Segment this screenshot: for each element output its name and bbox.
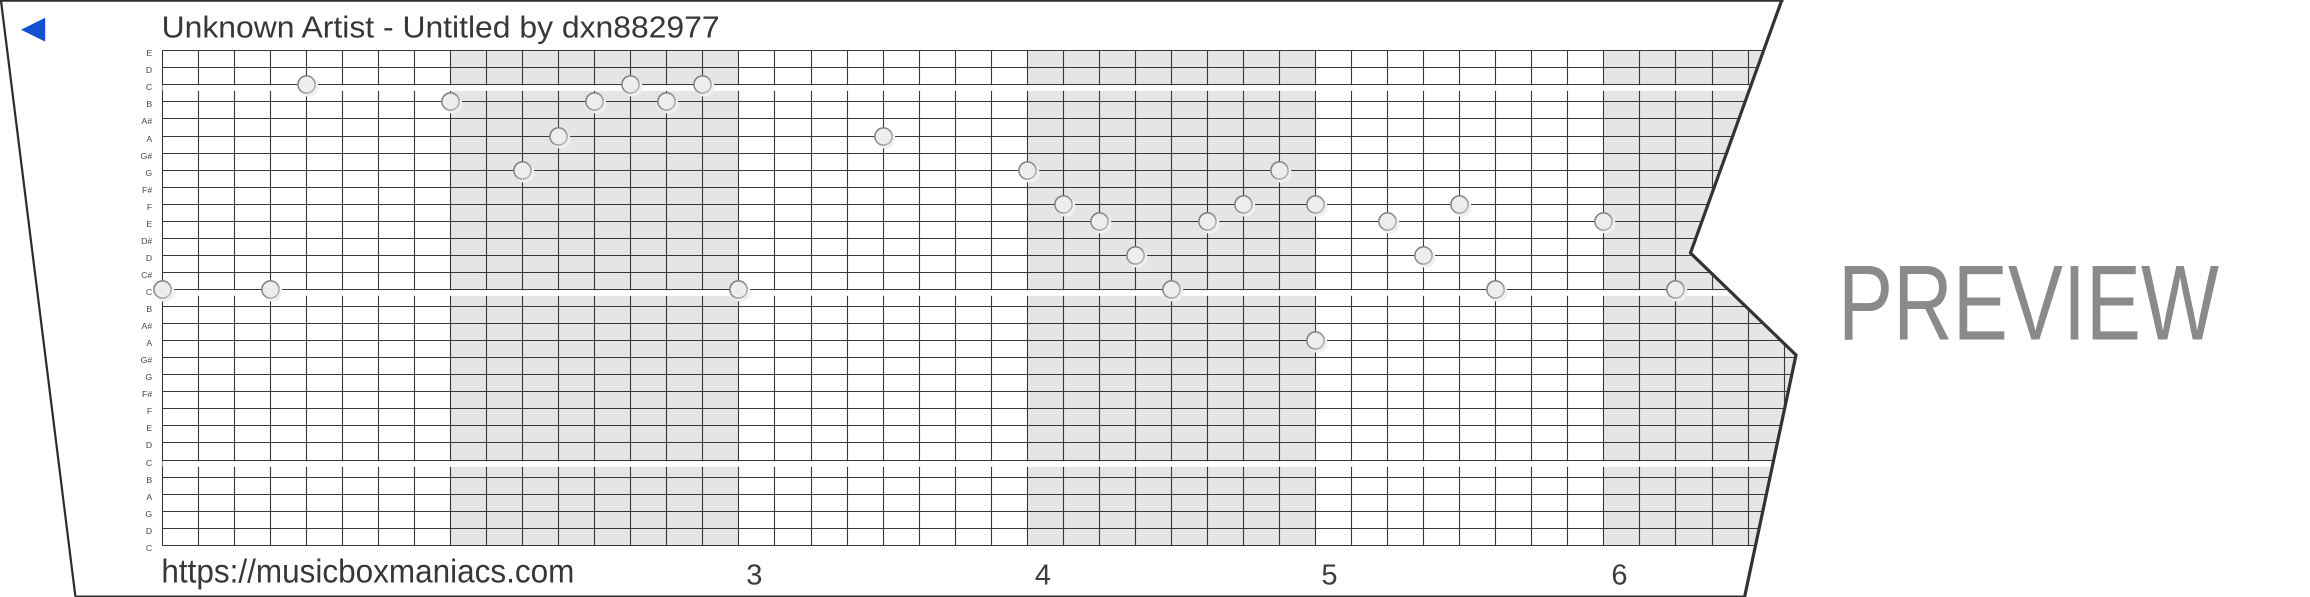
svg-text:A: A [146, 492, 152, 502]
svg-text:C#: C# [141, 270, 152, 280]
svg-text:F: F [147, 406, 152, 416]
svg-text:A: A [146, 134, 152, 144]
svg-text:B: B [146, 99, 152, 109]
svg-text:C: C [146, 543, 152, 553]
svg-text:5: 5 [1321, 560, 1337, 592]
svg-text:G: G [145, 372, 152, 382]
svg-text:F#: F# [142, 185, 152, 195]
svg-text:F#: F# [142, 389, 152, 399]
svg-text:G#: G# [141, 151, 153, 161]
svg-text:B: B [146, 304, 152, 314]
svg-text:6: 6 [1611, 560, 1627, 592]
svg-text:E: E [146, 48, 152, 58]
svg-text:C: C [146, 458, 152, 468]
svg-text:D: D [146, 65, 152, 75]
svg-text:D: D [146, 440, 152, 450]
svg-text:B: B [146, 475, 152, 485]
svg-text:A#: A# [142, 116, 153, 126]
svg-text:3: 3 [746, 560, 762, 592]
svg-text:D: D [146, 526, 152, 536]
svg-text:F: F [147, 202, 152, 212]
svg-text:D: D [146, 253, 152, 263]
svg-text:Unknown Artist - Untitled by d: Unknown Artist - Untitled by dxn882977 [162, 12, 720, 45]
svg-text:E: E [146, 423, 152, 433]
svg-text:G: G [145, 509, 152, 519]
svg-text:C: C [146, 82, 152, 92]
svg-text:C: C [146, 287, 152, 297]
svg-text:A#: A# [142, 321, 153, 331]
svg-text:E: E [146, 219, 152, 229]
svg-text:PREVIEW: PREVIEW [1838, 243, 2219, 363]
svg-text:https://musicboxmaniacs.com: https://musicboxmaniacs.com [161, 554, 574, 591]
svg-text:D#: D# [141, 236, 152, 246]
svg-text:G#: G# [141, 355, 153, 365]
svg-text:G: G [145, 168, 152, 178]
svg-text:4: 4 [1035, 560, 1051, 592]
svg-text:A: A [146, 338, 152, 348]
